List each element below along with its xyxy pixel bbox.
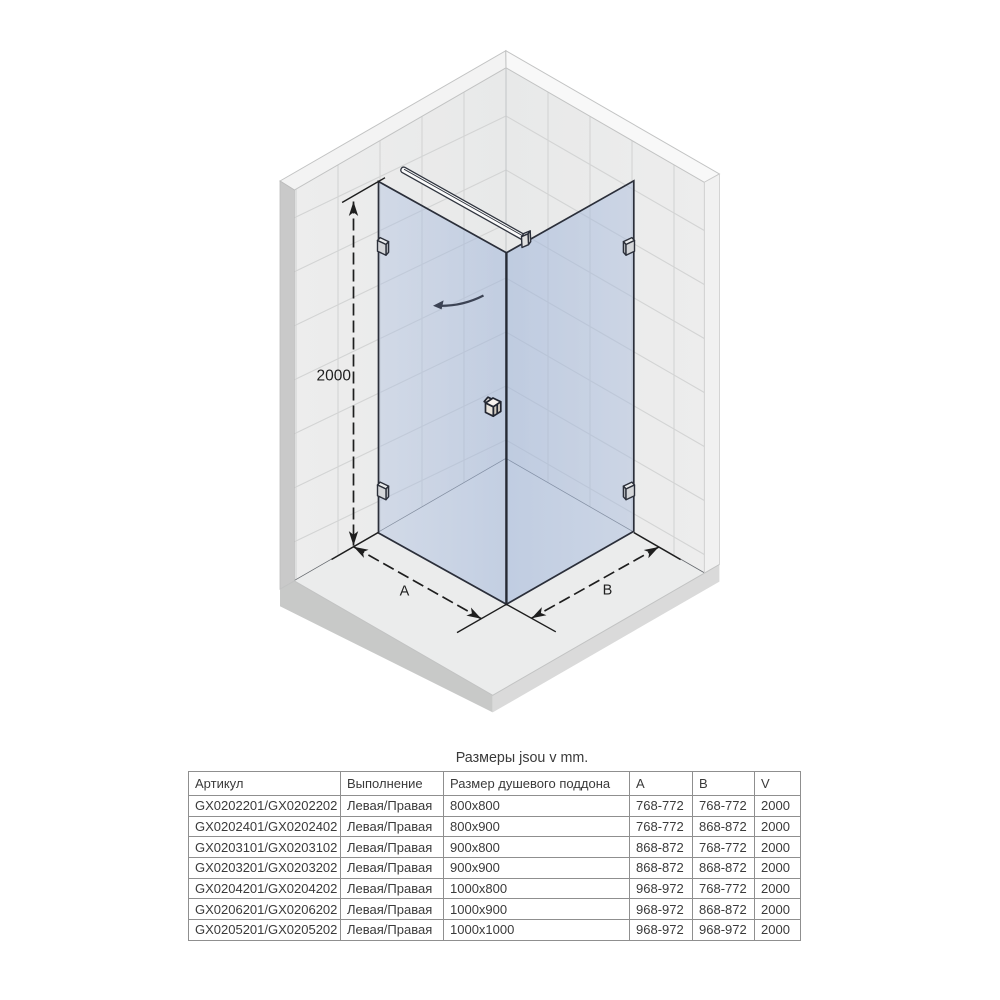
svg-text:B: B xyxy=(603,583,613,599)
svg-text:2000: 2000 xyxy=(317,368,352,385)
svg-text:A: A xyxy=(400,583,410,599)
